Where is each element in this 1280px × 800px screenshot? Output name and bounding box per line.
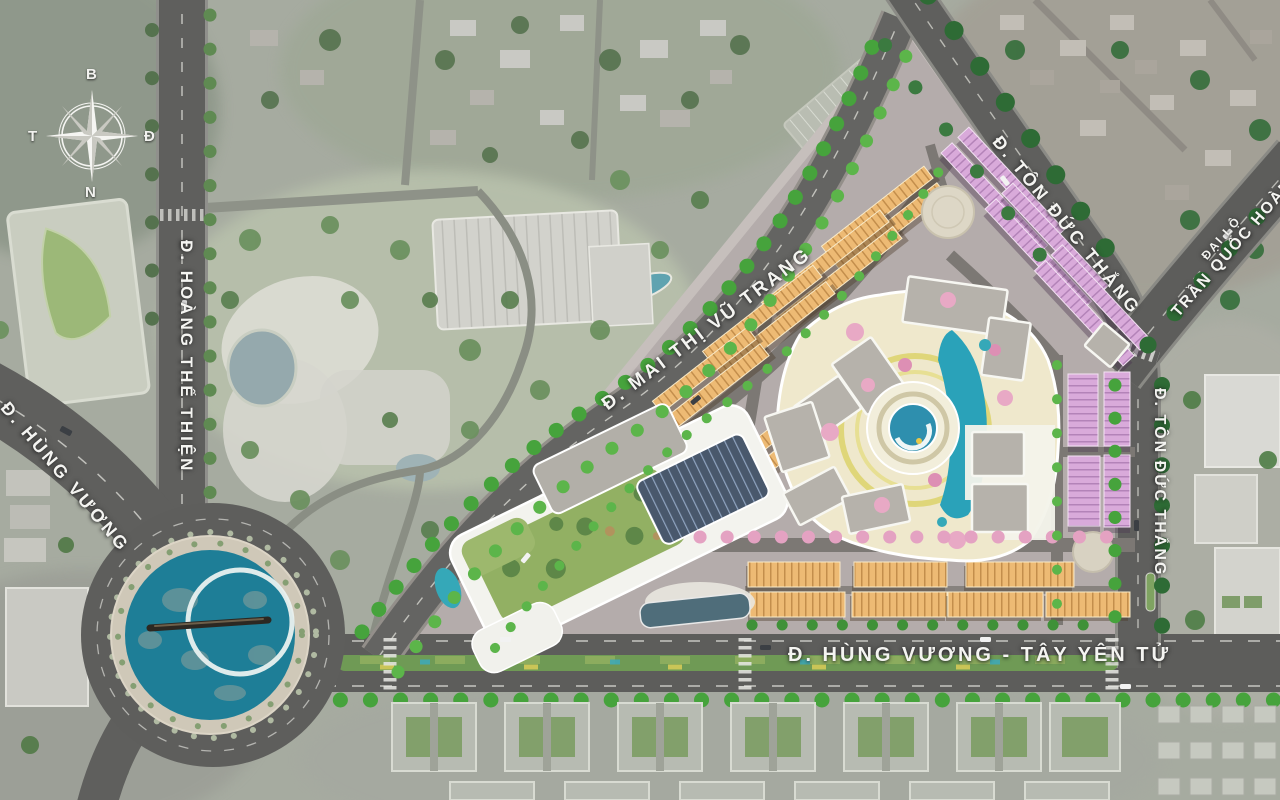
- shophouse-rows-south: [746, 562, 1130, 621]
- leaf-plaza: [7, 199, 150, 407]
- street-label-hung-vuong-tay-yen-tu: Đ. HÙNG VƯƠNG - TÂY YÊN TỬ: [788, 644, 1171, 667]
- circle-plaza-north: [922, 186, 974, 238]
- compass-south-label: N: [85, 184, 96, 201]
- masterplan-map: Đ. HOÀNG THẾ THIỆN Đ. HÙNG VƯƠNG Đ. MAI …: [0, 0, 1280, 800]
- compass-west-label: T: [28, 128, 37, 145]
- compass-north-label: B: [86, 66, 97, 83]
- street-label-ton-duc-thang-east: Đ. TÔN ĐỨC THẮNG: [1150, 388, 1168, 576]
- street-label-hoang-the-thien: Đ. HOÀNG THẾ THIỆN: [176, 240, 196, 473]
- compass-east-label: Đ: [144, 128, 155, 145]
